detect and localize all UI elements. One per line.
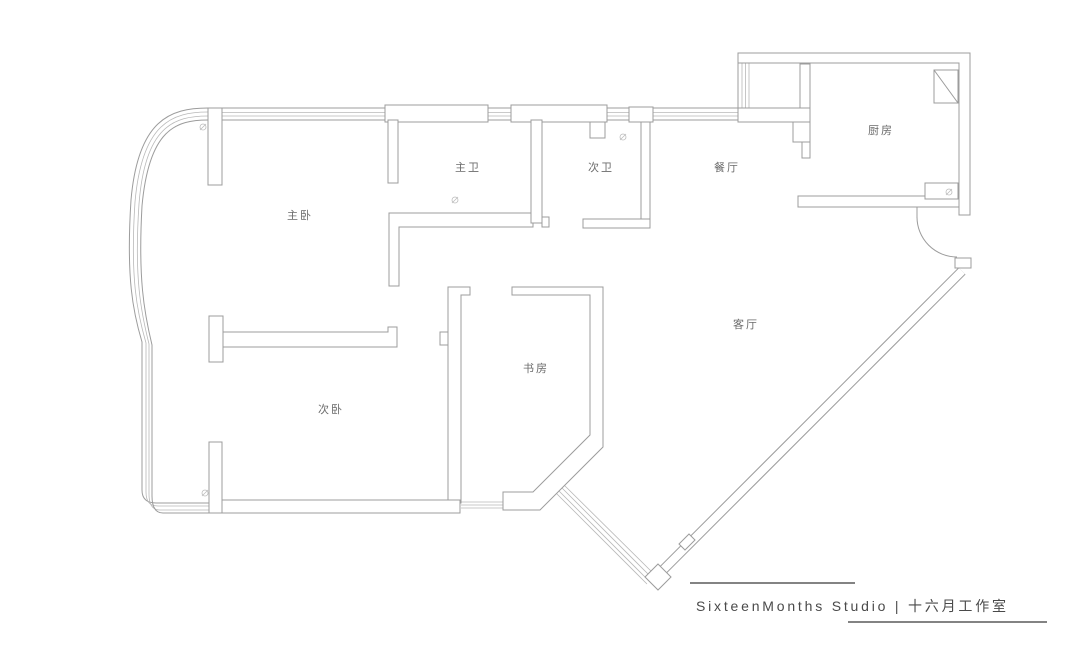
floor-plan-drawing: 主卧 主卫 次卫 餐厅 厨房 客厅 书房 次卧 SixteenMonths St… <box>0 0 1080 655</box>
wall-pier <box>208 108 222 185</box>
wall-kitchen-west <box>802 142 810 158</box>
wall-bath-divider-foot <box>542 217 549 227</box>
diameter-marker-icon <box>202 490 208 496</box>
wall-master-bath-south <box>389 213 533 286</box>
entry-glass-wall <box>553 483 656 584</box>
wall-kitchen-west <box>800 64 810 108</box>
wall-second-bath-south <box>583 219 650 228</box>
wall-bedroom-divider-stub <box>209 316 223 362</box>
footer: SixteenMonths Studio | 十六月工作室 <box>690 583 1047 622</box>
wall-second-bath-east <box>641 122 650 222</box>
wall-pier <box>388 120 398 183</box>
duct-stub <box>590 122 605 138</box>
wall-study-knob <box>440 332 448 345</box>
fixtures-layer <box>925 70 958 199</box>
diameter-marker-icon <box>200 124 206 130</box>
kitchen-corner-cabinet <box>934 70 958 103</box>
wall-kitchen-west <box>793 122 810 142</box>
wall-second-bedroom-south <box>222 500 460 513</box>
kitchen-counter <box>925 183 958 199</box>
bay-window <box>129 108 209 513</box>
floor-plan-page: 主卧 主卫 次卫 餐厅 厨房 客厅 书房 次卧 SixteenMonths St… <box>0 0 1080 655</box>
wall-block <box>385 105 488 122</box>
markers-layer <box>200 124 952 496</box>
room-label-kitchen: 厨房 <box>868 124 894 137</box>
study-bottom-window <box>461 502 503 508</box>
kitchen-door-swing <box>917 207 957 257</box>
wall-living-diagonal <box>645 258 971 590</box>
doors-layer <box>917 207 957 257</box>
studio-credit: SixteenMonths Studio | 十六月工作室 <box>696 598 1009 614</box>
kitchen-window <box>738 63 749 110</box>
room-label-second-bath: 次卫 <box>588 160 614 174</box>
walls-layer <box>208 53 971 590</box>
wall-bath-divider <box>531 120 542 223</box>
wall-study-west <box>448 287 470 503</box>
wall-study-east <box>503 287 603 510</box>
diameter-marker-icon <box>620 134 626 140</box>
room-label-dining: 餐厅 <box>714 160 740 174</box>
wall-block <box>629 107 653 122</box>
wall-dining-north <box>738 108 810 122</box>
wall-pier <box>209 442 222 513</box>
room-label-master-bath: 主卫 <box>455 161 481 174</box>
wall-bedroom-divider <box>223 327 397 347</box>
diameter-marker-icon <box>452 197 458 203</box>
room-label-study: 书房 <box>523 362 549 375</box>
room-label-living: 客厅 <box>733 317 759 331</box>
room-label-second-bedroom: 次卧 <box>318 402 344 416</box>
room-label-master-bedroom: 主卧 <box>287 209 313 222</box>
wall-block <box>511 105 607 122</box>
